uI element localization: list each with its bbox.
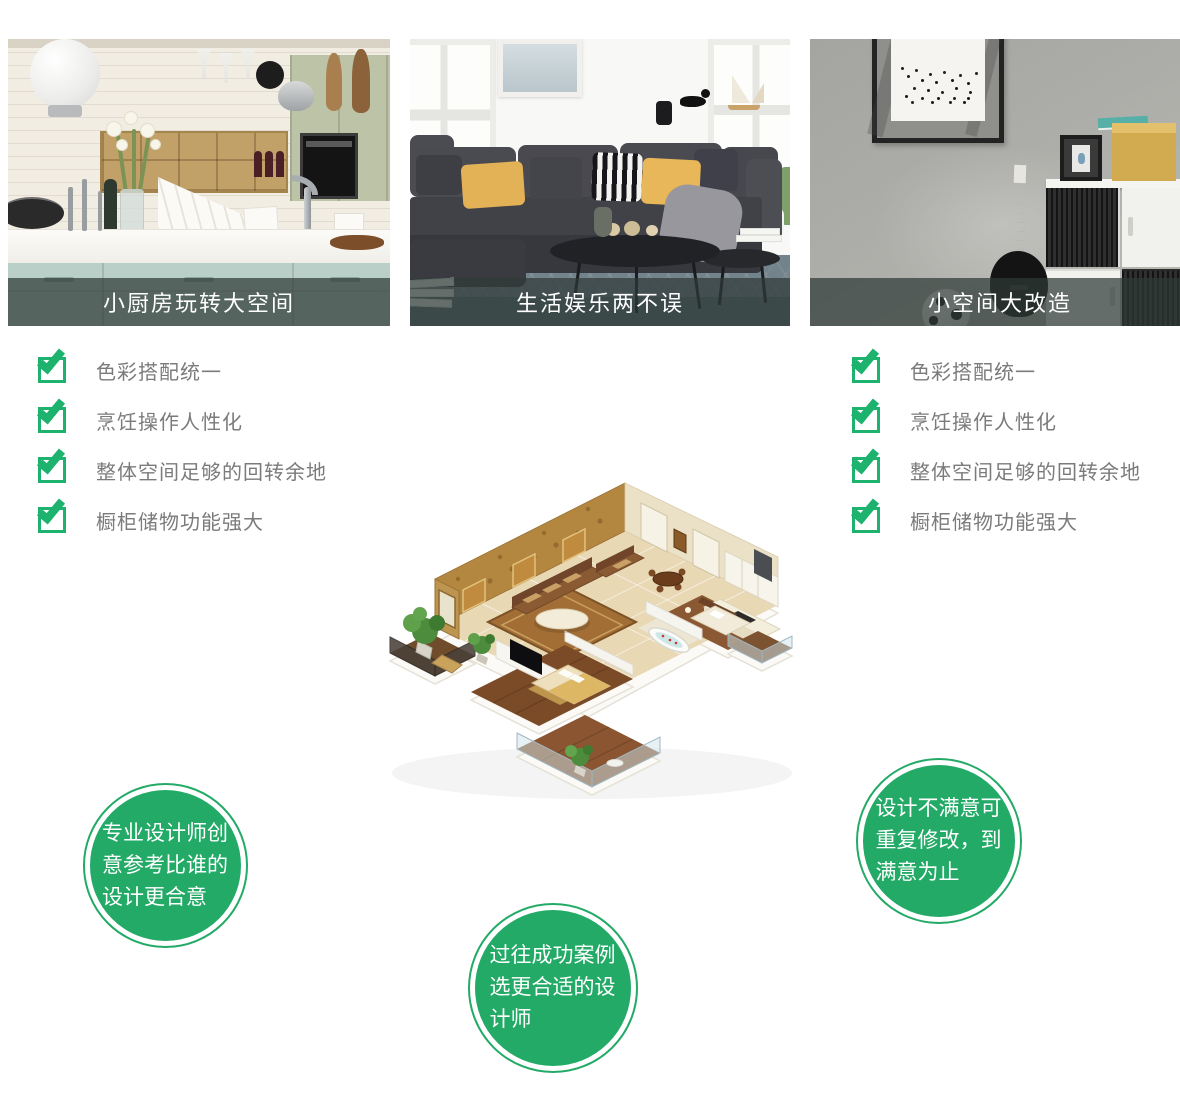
sailboat-sail [752,83,764,103]
checklist-item: 色彩搭配统一 [38,345,327,395]
pendant-lamp-base [48,105,82,117]
utensil [68,187,73,231]
book-stack [740,228,780,235]
checklist-item: 橱柜储物功能强大 [38,495,327,545]
bird-figurine-head [701,89,710,98]
caption-text: 小厨房玩转大空间 [103,286,295,318]
wine-bottle [276,151,284,177]
wine-bottle [254,151,262,177]
benefit-bubble-revisions: 设计不满意可重复修改，到满意为止 [856,758,1022,924]
coffee-table [536,609,588,629]
cabinet-handle [1128,217,1133,236]
caption-text: 生活娱乐两不误 [516,286,684,318]
hanging-pot [278,81,314,111]
sailboat-sail [732,75,750,103]
bubble-text: 过往成功案例选更合适的设计师 [490,940,617,1036]
card-caption: 生活娱乐两不误 [410,278,790,326]
bubble-text: 专业设计师创意参考比谁的设计更合意 [102,818,229,914]
checklist-label: 色彩搭配统一 [910,356,1036,385]
checklist-label: 色彩搭配统一 [96,356,222,385]
checklist-item: 整体空间足够的回转余地 [38,445,327,495]
glass-vase [594,207,612,237]
promo-page: 小厨房玩转大空间 [0,0,1180,1095]
caption-text: 小空间大改造 [928,286,1072,318]
checklist-left: 色彩搭配统一 烹饪操作人性化 整体空间足够的回转余地 橱柜储物功能强大 [38,345,327,545]
art-speckles [901,67,904,70]
flower [116,139,128,151]
wine-bottle [265,151,273,177]
checkmark-icon [38,457,66,483]
checkmark-icon [852,407,880,433]
wall-art [498,39,582,97]
table-decor [624,221,640,236]
sailboat-hull [728,105,760,110]
utensil [82,179,87,231]
hanging-pan [256,61,284,89]
faucet [304,187,311,231]
feature-card-kitchen: 小厨房玩转大空间 [8,39,390,326]
utensil [98,191,102,231]
bird-figurine [680,96,706,107]
checklist-item: 橱柜储物功能强大 [852,495,1141,545]
storage-box [1112,133,1176,181]
cutting-board [326,53,342,111]
checkmark-icon [38,407,66,433]
art-canvas [891,39,985,121]
flower [106,121,122,137]
pillow [530,157,582,199]
checklist-label: 烹饪操作人性化 [910,406,1057,435]
checkmark-icon [38,507,66,533]
champagne-bottle [104,179,117,233]
glass-vase [120,189,144,233]
card-caption: 小厨房玩转大空间 [8,278,390,326]
checklist-label: 整体空间足够的回转余地 [910,456,1141,485]
checklist-item: 烹饪操作人性化 [852,395,1141,445]
checklist-label: 烹饪操作人性化 [96,406,243,435]
flower-stem [132,129,136,193]
coffee-table [550,235,720,267]
flower [150,139,161,150]
checklist-item: 整体空间足够的回转余地 [852,445,1141,495]
card-caption: 小空间大改造 [810,278,1180,326]
counter-board [330,235,384,250]
lantern [656,101,672,125]
cutting-board [352,49,370,113]
bedside-lamp [685,607,691,613]
yellow-pillow [461,161,526,209]
checklist-label: 橱柜储物功能强大 [910,506,1078,535]
balcony-table [607,760,623,767]
floor-plan-image [330,473,800,818]
checklist-label: 橱柜储物功能强大 [96,506,264,535]
flower [140,123,155,138]
checkmark-icon [852,507,880,533]
book-stack [736,235,782,242]
checkmark-icon [852,457,880,483]
table-decor [646,225,658,236]
oven-display [306,141,352,147]
pendant-lamp [30,39,100,109]
bubble-text: 设计不满意可重复修改，到满意为止 [876,793,1003,889]
feature-card-musicroom: 小空间大改造 [810,39,1180,326]
checklist-item: 色彩搭配统一 [852,345,1141,395]
checklist-label: 整体空间足够的回转余地 [96,456,327,485]
benefit-bubble-designer: 专业设计师创意参考比谁的设计更合意 [83,783,248,948]
cabinet-door-black [1046,188,1120,267]
photo-figure [1078,153,1085,164]
checkmark-icon [852,357,880,383]
pillow [416,155,462,195]
striped-pillow [591,152,643,202]
feature-card-livingroom: 生活娱乐两不误 [410,39,790,326]
bubble-disk: 过往成功案例选更合适的设计师 [475,910,631,1066]
checkmark-icon [38,357,66,383]
benefit-bubble-cases: 过往成功案例选更合适的设计师 [468,903,638,1073]
flower [124,111,138,125]
storage-box-lid [1112,123,1176,133]
bubble-disk: 设计不满意可重复修改，到满意为止 [863,765,1015,917]
bubble-disk: 专业设计师创意参考比谁的设计更合意 [90,790,241,941]
checklist-right: 色彩搭配统一 烹饪操作人性化 整体空间足够的回转余地 橱柜储物功能强大 [852,345,1141,545]
checklist-item: 烹饪操作人性化 [38,395,327,445]
